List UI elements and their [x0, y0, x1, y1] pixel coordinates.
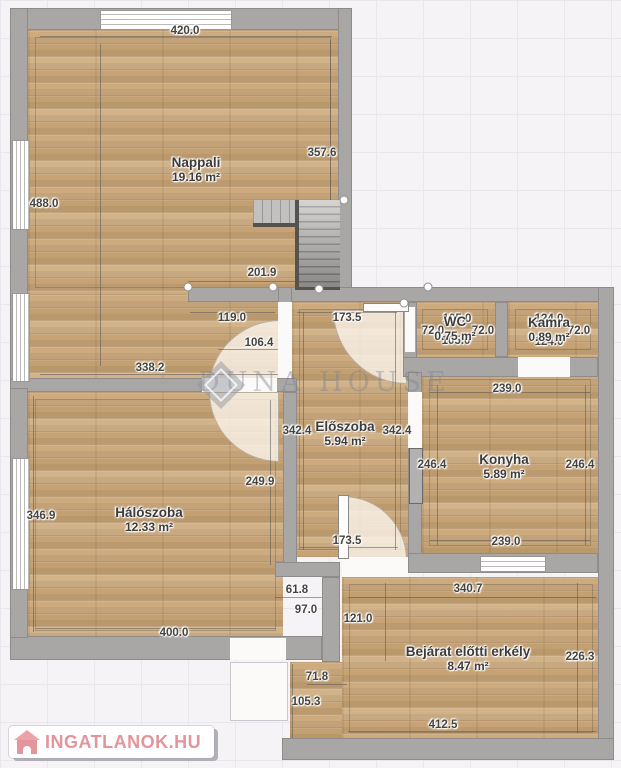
room-name: Előszoba [315, 419, 374, 434]
room-label-nappali: Nappali19.16 m² [172, 155, 221, 185]
konyha-door-leaf [409, 448, 423, 504]
stairs-flight [295, 200, 340, 290]
wall-handle-3 [340, 196, 349, 205]
dimension-label-239-0-18: 239.0 [493, 383, 522, 395]
terrace-outside [230, 662, 288, 721]
room-name: Nappali [172, 155, 221, 170]
dim-line-488 [100, 44, 101, 366]
dimension-label-342-4-17: 342.4 [383, 425, 412, 437]
house-door-icon [23, 746, 31, 754]
room-area: 5.89 m² [483, 467, 524, 482]
opening-wc-door [405, 307, 415, 352]
room-area: 0.89 m² [528, 330, 569, 345]
stairs-landing [253, 200, 295, 227]
dim-line-71 [307, 684, 347, 685]
room-label-h-l-szoba: Hálószoba12.33 m² [115, 505, 183, 535]
room-name: Hálószoba [115, 505, 183, 520]
dimension-label-246-4-20: 246.4 [566, 459, 595, 471]
opening-kamra-door [518, 357, 570, 377]
wall-right [598, 287, 614, 760]
room-label-konyha: Konyha5.89 m² [479, 452, 529, 482]
dim-line-412 [348, 731, 596, 732]
dimension-label-340-7-30: 340.7 [454, 583, 483, 595]
wall-balcony-bottom [282, 738, 614, 760]
dimension-label-106-4-5: 106.4 [245, 337, 274, 349]
opening-haloszoba-door [202, 378, 277, 392]
dimension-label-400-0-24: 400.0 [160, 627, 189, 639]
dimension-label-357-6-2: 357.6 [308, 147, 337, 159]
floor-plan: 420.0488.0357.6201.9119.0106.4338.2173.5… [0, 0, 621, 768]
dimension-label-105-3-29: 105.3 [292, 696, 321, 708]
wall-handle-1 [184, 283, 193, 292]
dim-line-340 [348, 597, 596, 598]
wall-jog-horizontal [275, 562, 340, 577]
logo-text: INGATLANOK.HU [45, 732, 201, 753]
dimension-label-249-9-23: 249.9 [246, 476, 275, 488]
dimension-label-239-0-21: 239.0 [492, 536, 521, 548]
room-name: Kamra [528, 315, 570, 330]
dim-line-201 [188, 281, 310, 282]
house-roof-icon [14, 730, 40, 740]
wall-haloszoba-right [283, 392, 297, 564]
entrance-door-leaf [338, 495, 349, 559]
wall-wc-kamra-divider [495, 302, 508, 357]
room-area: 0.75 m² [434, 329, 475, 344]
dimension-label-346-9-22: 346.9 [27, 510, 56, 522]
window-left-2 [12, 293, 30, 382]
room-name: WC [444, 314, 467, 329]
dim-line-338 [40, 374, 278, 375]
room-label-kamra: Kamra0.89 m² [528, 315, 570, 345]
opening-terrace-door [230, 638, 286, 660]
room-name: Bejárat előtti erkély [406, 644, 531, 659]
room-label-bej-rat-el-tti-erk-ly: Bejárat előtti erkély8.47 m² [406, 644, 531, 674]
wall-handle-6 [424, 283, 433, 292]
dimension-label-488-0-1: 488.0 [30, 198, 59, 210]
dim-line-106 [218, 349, 278, 350]
dimension-label-71-8-28: 71.8 [306, 671, 328, 683]
dimension-label-201-9-3: 201.9 [248, 267, 277, 279]
dimension-label-342-4-16: 342.4 [283, 425, 312, 437]
dim-line-400 [36, 628, 276, 629]
window-left-3 [12, 458, 30, 590]
dimension-label-338-2-6: 338.2 [136, 362, 165, 374]
room-label-el-szoba: Előszoba5.94 m² [315, 419, 374, 449]
dim-line-173-bottom [300, 547, 398, 548]
dimension-label-61-8-25: 61.8 [286, 584, 308, 596]
house-icon [14, 730, 40, 754]
ingatlanok-logo-badge: INGATLANOK.HU [9, 726, 214, 758]
wall-handle-2 [269, 283, 278, 292]
dimension-label-420-0-0: 420.0 [171, 25, 200, 37]
room-area: 12.33 m² [125, 520, 173, 535]
dimension-label-119-0-4: 119.0 [218, 312, 246, 324]
wall-jog-vertical [322, 577, 340, 662]
room-area: 5.94 m² [324, 434, 365, 449]
opening-eloszoba-left [278, 302, 292, 378]
room-label-wc: WC0.75 m² [434, 314, 475, 344]
window-left-1 [12, 140, 30, 230]
dimension-label-173-5-8: 173.5 [333, 535, 362, 547]
room-name: Konyha [479, 452, 529, 467]
dimension-label-173-5-7: 173.5 [333, 312, 362, 324]
wall-handle-4 [315, 285, 324, 294]
wall-nappali-right [338, 8, 352, 302]
opening-konyha-door [408, 392, 422, 448]
room-area: 8.47 m² [447, 659, 488, 674]
dimension-label-121-0-27: 121.0 [344, 613, 373, 625]
window-konyha-bottom [480, 556, 546, 572]
floorplan-canvas: 420.0488.0357.6201.9119.0106.4338.2173.5… [0, 0, 621, 768]
dimension-label-226-3-31: 226.3 [566, 651, 595, 663]
window-top [100, 10, 232, 30]
wall-handle-5 [400, 299, 409, 308]
dim-line-121 [385, 583, 386, 661]
room-area: 19.16 m² [172, 170, 220, 185]
dimension-label-412-5-32: 412.5 [429, 719, 458, 731]
dimension-label-72-0-14: 72.0 [568, 325, 590, 337]
dimension-label-246-4-19: 246.4 [418, 459, 447, 471]
opening-entrance [342, 557, 408, 577]
dimension-label-97-0-26: 97.0 [295, 604, 317, 616]
